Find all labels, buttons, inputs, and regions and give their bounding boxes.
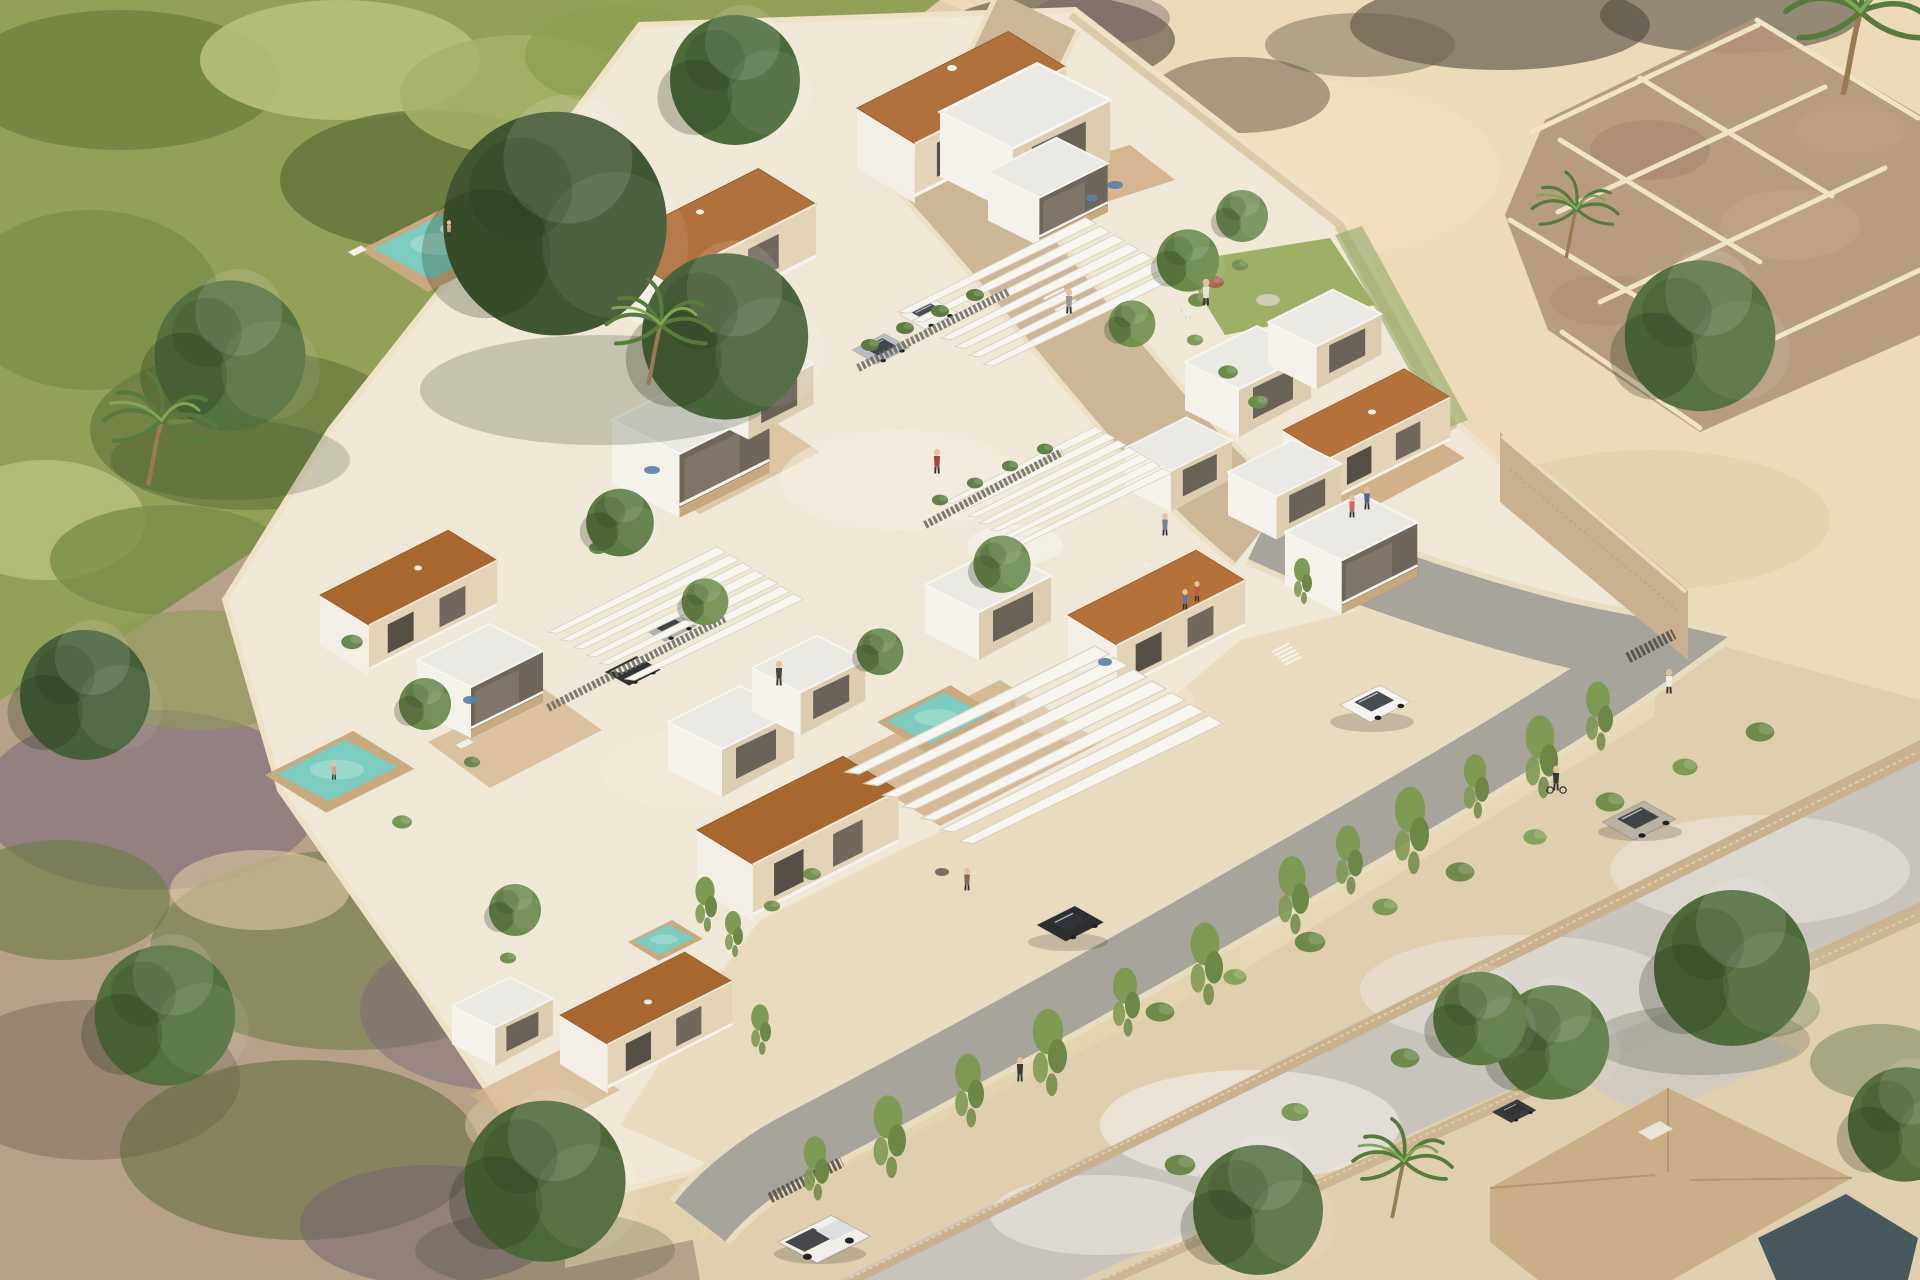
median-bush: [1372, 899, 1397, 916]
median-bush: [1146, 1002, 1175, 1021]
garden-bush: [341, 635, 363, 649]
garden-bush: [1232, 260, 1248, 271]
roof-chimney: [644, 1000, 652, 1005]
garden-bush: [803, 868, 821, 880]
roof-chimney: [1368, 410, 1376, 415]
patio-furniture: [644, 466, 660, 474]
villa-development-render: [0, 0, 1920, 1280]
median-bush: [1523, 829, 1546, 845]
median-bush: [1746, 722, 1775, 741]
scrub-mottle: [170, 850, 350, 930]
garden-bush: [764, 901, 780, 912]
garden-bush: [1248, 395, 1268, 408]
roadside-bush: [1391, 1048, 1420, 1067]
architectural-render-viewport: [0, 0, 1920, 1280]
roof-chimney: [947, 65, 957, 71]
hedge-bush: [967, 478, 983, 489]
roadside-bush: [1165, 1155, 1196, 1175]
ruins-mottle: [1795, 104, 1905, 156]
hedge-bush: [1037, 444, 1053, 455]
median-bush: [1446, 862, 1475, 881]
median-bush: [1596, 792, 1625, 811]
roof-chimney: [696, 210, 704, 215]
garden-bush: [464, 757, 480, 768]
roof-chimney: [1142, 563, 1150, 568]
hedge-bush: [861, 339, 879, 351]
garden-bush: [1218, 365, 1238, 378]
ground-light: [780, 430, 1020, 530]
patio-furniture: [463, 696, 477, 704]
garden-bush: [392, 815, 412, 828]
roadside-bush: [1282, 1103, 1309, 1121]
garden-rock: [1256, 294, 1280, 306]
garden-bush: [1187, 335, 1203, 346]
median-bush: [1672, 759, 1697, 776]
patio-furniture: [1086, 195, 1098, 202]
hedge-bush: [1002, 461, 1018, 472]
hedge-bush: [932, 495, 948, 506]
hedge-bush: [896, 322, 914, 334]
patio-furniture: [1098, 658, 1112, 666]
garden-bush: [500, 953, 516, 964]
roof-chimney: [791, 774, 799, 779]
hedge-bush: [931, 305, 949, 317]
patio-furniture: [1107, 181, 1123, 189]
roof-chimney: [414, 566, 422, 571]
road-fog: [990, 1175, 1210, 1255]
scrub-patch: [1265, 13, 1455, 77]
scene-layer: [0, 0, 1920, 1280]
hedge-bush: [966, 289, 984, 301]
median-bush: [1223, 969, 1246, 985]
patio-furniture: [935, 868, 949, 876]
median-bush: [1295, 932, 1326, 952]
